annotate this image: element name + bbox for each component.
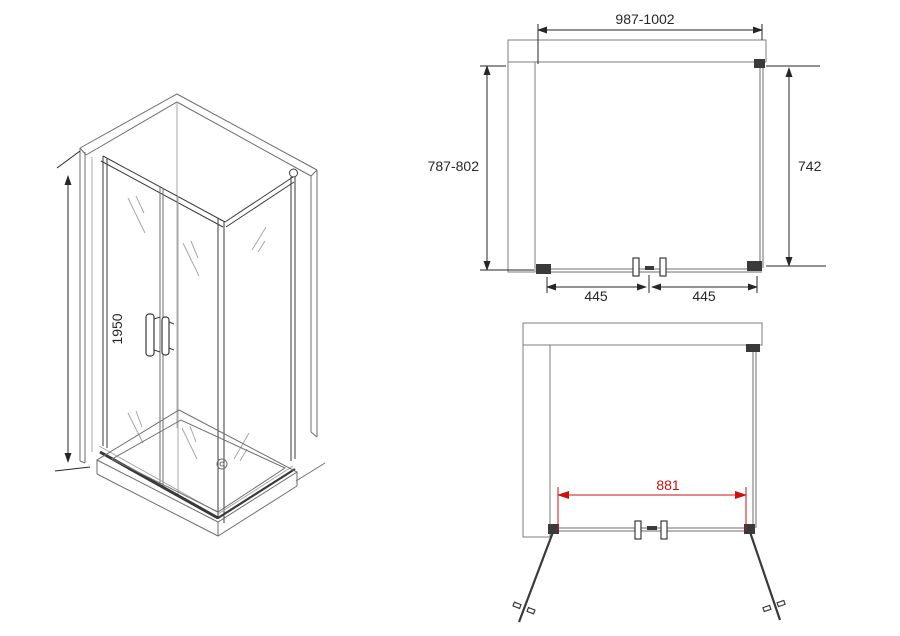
left-wall-profile (536, 264, 551, 274)
height-dimension-label: 1950 (109, 313, 125, 344)
width-dimension-label: 987-1002 (615, 11, 674, 27)
top-plan-view: 987-1002 787-802 742 445 445 (428, 11, 826, 304)
side-panel-dimension: 742 (766, 66, 826, 266)
top-plan-walls (508, 40, 766, 272)
right-door-dimension-label: 445 (692, 288, 716, 304)
shower-enclosure-drawing: 1950 987-1002 787-802 (0, 0, 900, 636)
depth-dimension-label: 787-802 (428, 158, 480, 174)
wall-bracket-knob (290, 169, 298, 177)
right-door-handle (162, 317, 169, 355)
iso-height-dimension: 1950 (55, 151, 125, 471)
opening-dimension-label: 881 (656, 477, 680, 493)
open-left-door (513, 532, 553, 622)
open-plan-side-panel (746, 344, 760, 528)
left-door-handle (146, 314, 154, 356)
wall-left (508, 62, 535, 272)
iso-shower-tray (97, 410, 297, 536)
technical-drawing-page: 1950 987-1002 787-802 (0, 0, 900, 636)
panel-wall-bracket (746, 344, 760, 352)
opening-dimension: 881 (558, 477, 746, 530)
isometric-view: 1950 (55, 94, 325, 536)
right-corner-profile (747, 261, 762, 271)
door-seam (647, 526, 657, 530)
iso-enclosure-frame (99, 156, 298, 523)
panel-wall-bracket (754, 59, 765, 68)
side-panel-dimension-label: 742 (798, 158, 822, 174)
right-door-handle-plan (661, 521, 667, 539)
left-door-dimension-label: 445 (584, 288, 608, 304)
iso-walls (80, 94, 325, 481)
top-plan-side-panel (754, 59, 765, 268)
left-door-handle-plan (633, 258, 639, 276)
depth-dimension: 787-802 (428, 66, 534, 270)
left-door-handle-plan (635, 521, 641, 539)
door-seam (645, 266, 654, 270)
wall-top (508, 40, 766, 62)
top-plan-doors-closed (536, 258, 762, 276)
right-door-handle-plan (660, 258, 666, 276)
open-plan-view: 881 (513, 323, 785, 622)
open-plan-threshold (548, 521, 755, 539)
width-dimension: 987-1002 (538, 11, 762, 64)
open-right-door (750, 532, 785, 620)
wall-top (523, 323, 762, 345)
wall-left (523, 345, 550, 537)
open-plan-walls (523, 323, 762, 537)
door-width-dimensions: 445 445 (547, 275, 757, 304)
